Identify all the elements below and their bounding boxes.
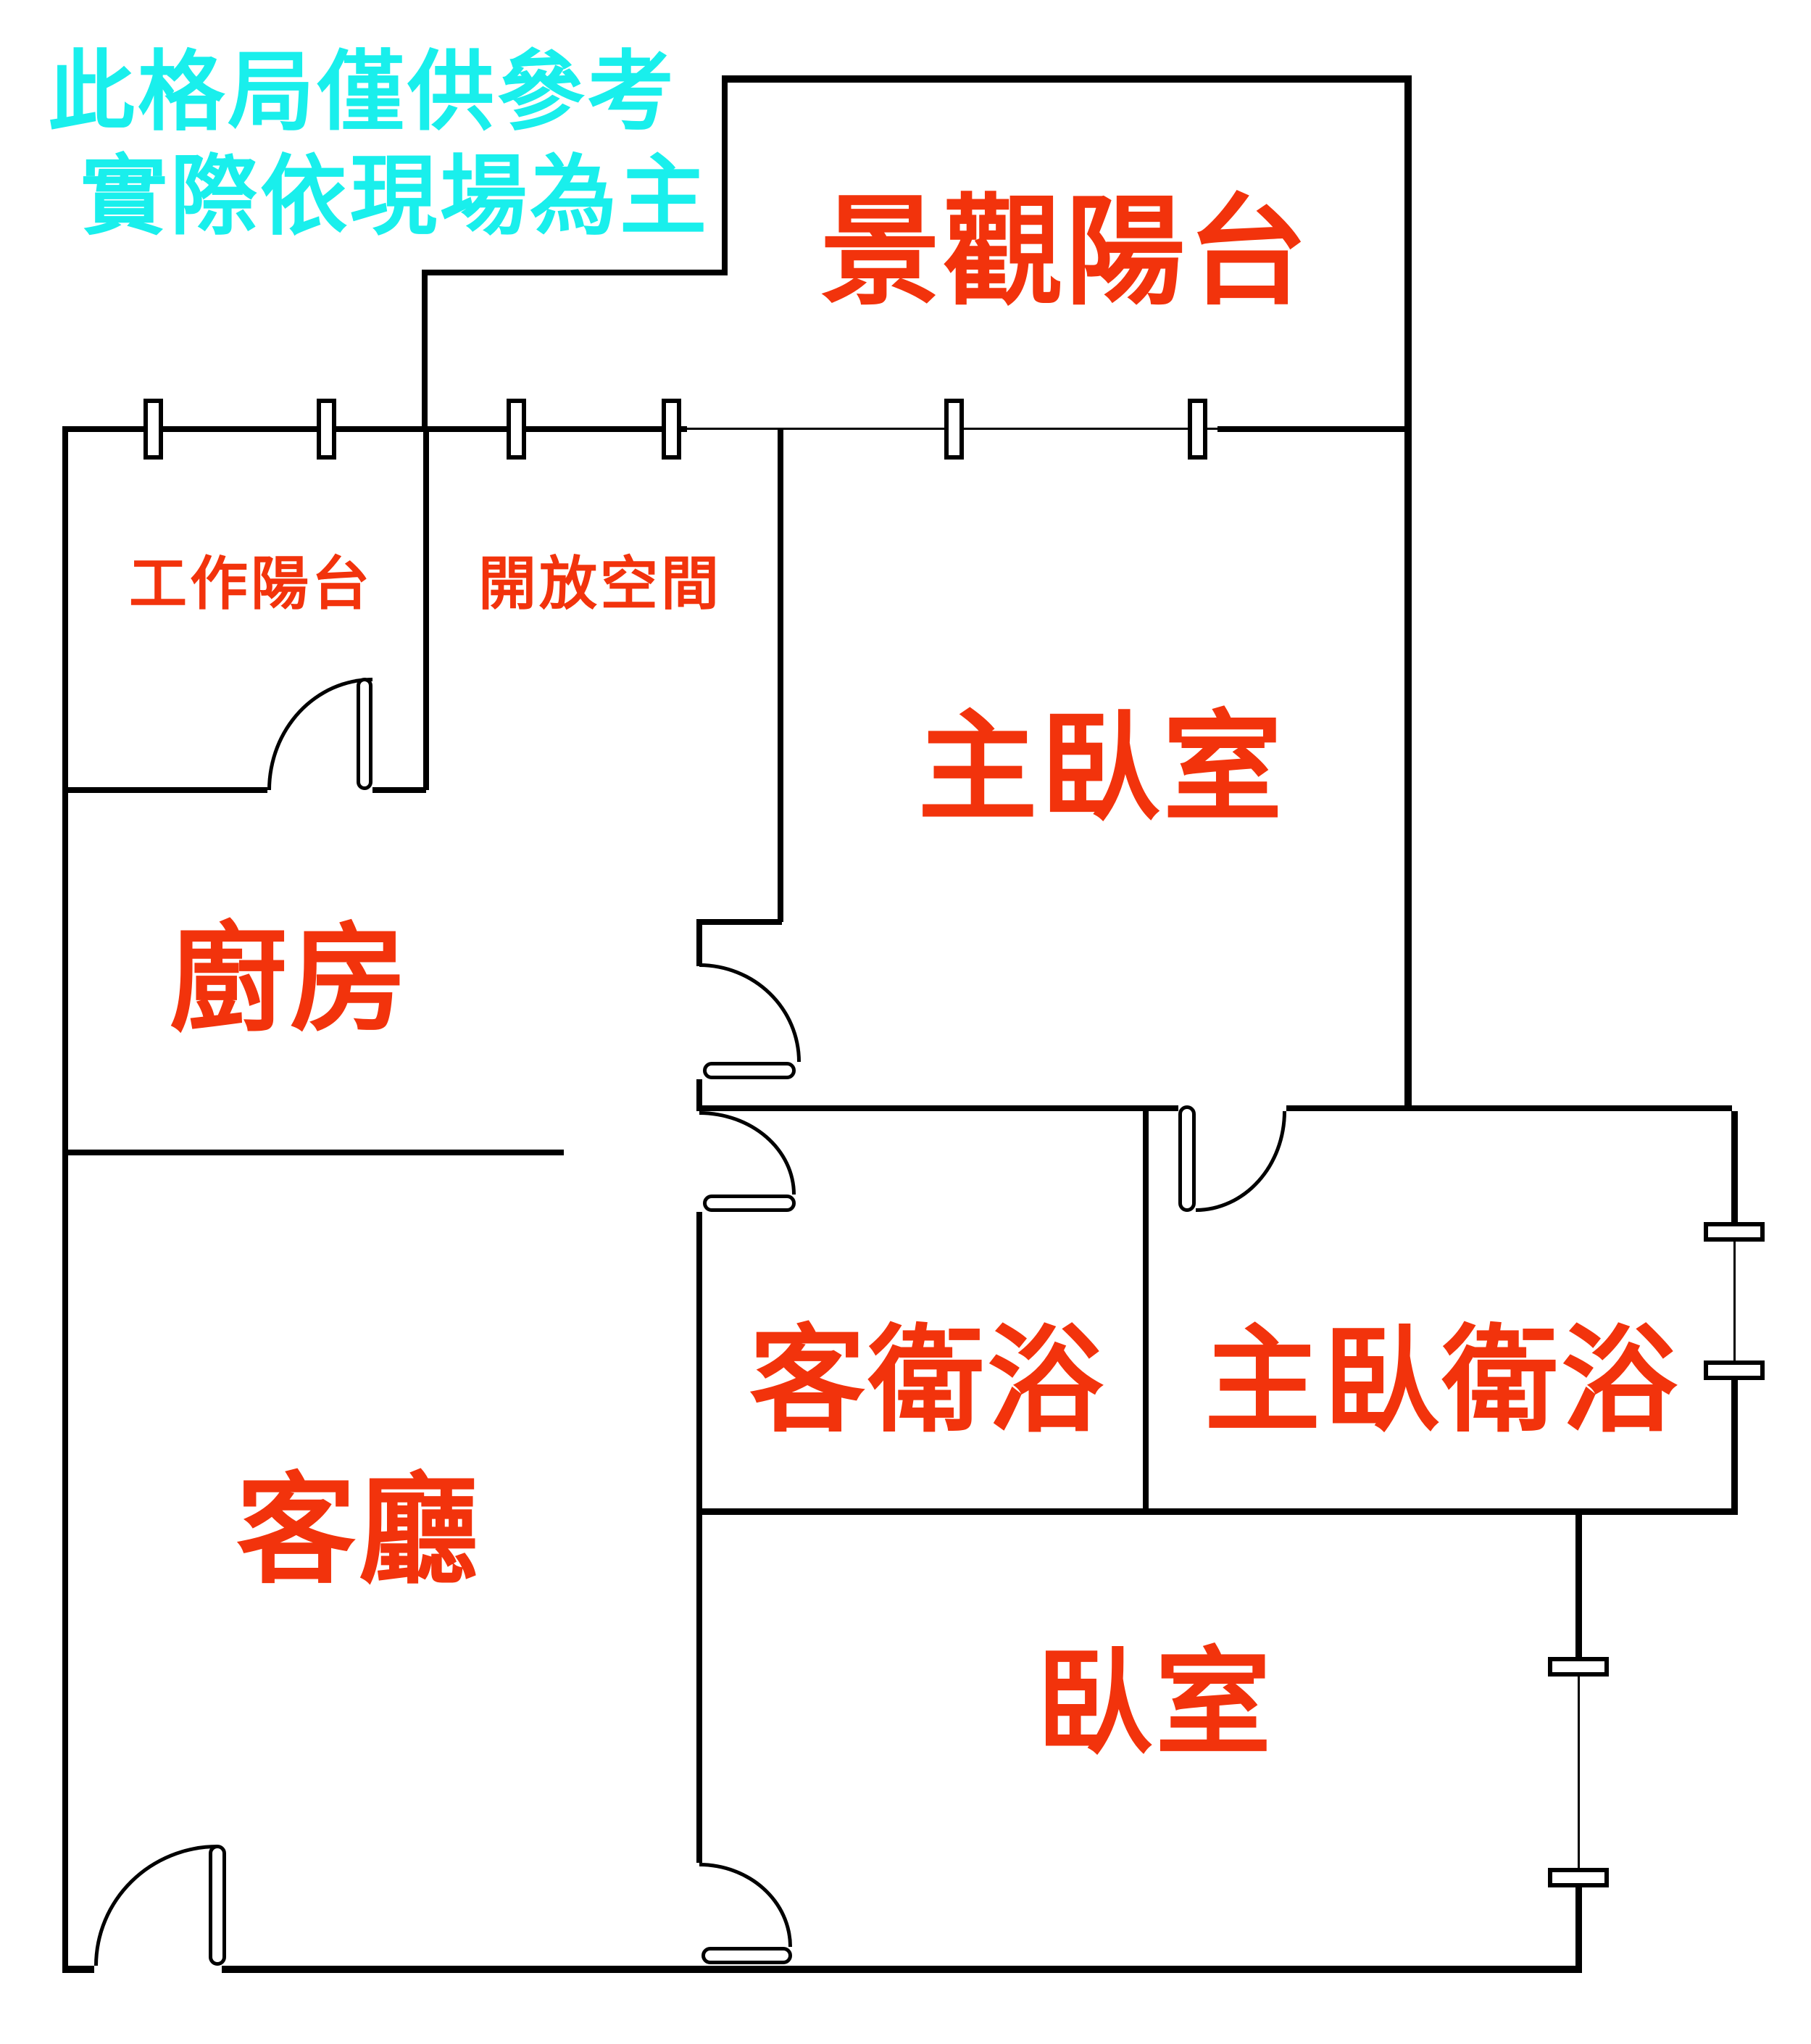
label-guest-bathroom: 客衛浴 <box>749 1323 1106 1439</box>
wall-masterbath-right-b <box>1731 1380 1738 1508</box>
wall-hall-lower <box>696 1212 702 1863</box>
window-masterbath-2 <box>1704 1360 1765 1380</box>
wall-hall-upper-a <box>696 919 702 966</box>
door-leaf-workbalcony <box>357 678 372 790</box>
wall-masterbath-right-a <box>1731 1111 1738 1222</box>
wall-balcony-step-v2 <box>422 270 428 432</box>
door-leaf-masterbath <box>1178 1105 1196 1212</box>
glass-masterbath <box>1733 1242 1736 1360</box>
window-front-4 <box>662 399 681 460</box>
door-arc-entry <box>94 1845 217 1966</box>
door-arc-guestbath <box>699 1111 796 1195</box>
wall-bath-divider <box>1143 1111 1149 1511</box>
floor-plan: 此格局僅供參考實際依現場為主景觀陽台工作陽台開放空間主臥室廚房客衛浴主臥衛浴客廳… <box>0 0 1811 2044</box>
label-view-balcony: 景觀陽台 <box>820 193 1310 312</box>
door-leaf-entry <box>209 1845 226 1966</box>
wall-workbalcony-bottom-left <box>62 787 267 793</box>
window-bedroom-1 <box>1548 1657 1609 1677</box>
wall-bedroom-right-a <box>1575 1515 1582 1657</box>
wall-bedroom-right-b <box>1575 1887 1582 1973</box>
label-living-room: 客廳 <box>236 1471 481 1591</box>
label-work-balcony: 工作陽台 <box>129 555 372 613</box>
window-front-2 <box>317 399 336 460</box>
wall-hall-step <box>696 919 782 925</box>
wall-workbalcony-bottom-right <box>372 787 426 793</box>
wall-right-outer <box>1404 75 1412 1111</box>
wall-bottom <box>222 1966 1582 1973</box>
door-leaf-master <box>703 1062 796 1079</box>
label-kitchen: 廚房 <box>170 921 410 1039</box>
door-arc-masterbath <box>1196 1111 1286 1212</box>
window-front-6 <box>1188 399 1207 460</box>
window-front-5 <box>944 399 964 460</box>
door-leaf-guestbath <box>703 1195 796 1212</box>
wall-balcony-step-v1 <box>722 75 728 275</box>
label-open-space: 開放空間 <box>478 555 722 613</box>
window-masterbath-1 <box>1704 1222 1765 1242</box>
wall-kitchen-divider <box>62 1150 564 1155</box>
wall-master-bottom-left <box>696 1105 1178 1111</box>
wall-workbalcony-divider <box>423 429 429 790</box>
door-leaf-bedroom <box>701 1947 792 1964</box>
wall-balcony-top <box>725 75 1412 83</box>
label-master-bedroom: 主臥室 <box>918 709 1286 828</box>
glass-bedroom-right <box>1578 1677 1580 1868</box>
window-bedroom-2 <box>1548 1868 1609 1887</box>
window-front-1 <box>143 399 163 460</box>
door-arc-master <box>699 963 801 1062</box>
wall-master-left <box>778 429 783 922</box>
wall-balcony-step-h <box>422 270 728 275</box>
wall-master-bottom-right <box>1286 1105 1732 1111</box>
door-arc-bedroom <box>699 1863 792 1947</box>
note-line-2: 實際依現場為主 <box>80 154 709 241</box>
wall-bottom-left-stub <box>62 1966 94 1973</box>
wall-left-outer <box>62 426 68 1973</box>
label-bedroom: 臥室 <box>1036 1645 1274 1761</box>
wall-front-window-right <box>1217 426 1412 432</box>
note-line-1: 此格局僅供參考 <box>48 49 677 136</box>
wall-bath-bottom <box>696 1508 1738 1515</box>
window-front-3 <box>507 399 526 460</box>
label-master-bathroom: 主臥衛浴 <box>1204 1323 1680 1439</box>
